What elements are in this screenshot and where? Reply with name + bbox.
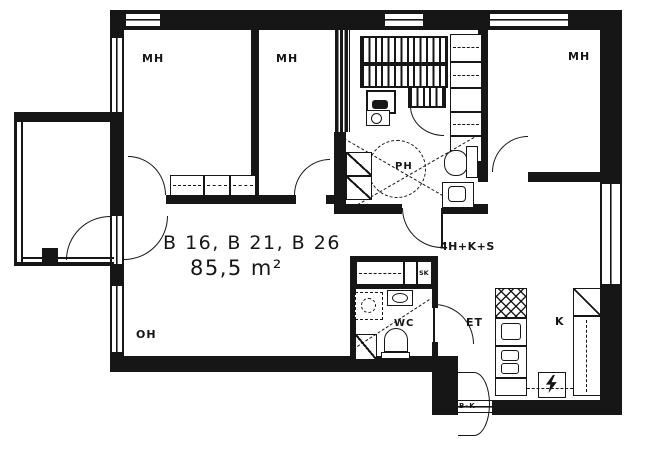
kitchen-upper-cabinet-line (586, 320, 587, 392)
door-arc-bedroom1 (128, 156, 166, 195)
wc-closet (356, 261, 404, 285)
room-label-wc: WC (394, 318, 414, 329)
room-label-washroom: PH (395, 161, 413, 172)
wall-wc-right-upper (432, 256, 438, 308)
closet-ph-lower (346, 176, 372, 200)
wall-washroom-left (334, 132, 346, 214)
stove-icon (538, 372, 566, 398)
toilet-base-wc (381, 352, 410, 359)
cabinet-2 (450, 62, 482, 88)
window-right (601, 184, 621, 284)
kitchen-sink-icon (495, 346, 527, 378)
fridge-diagonal-icon (573, 288, 601, 316)
wall-bedroom3-bottom (528, 172, 602, 182)
unit-numbers-label: B 16, B 21, B 26 (163, 232, 341, 254)
floor-plan: SK MH MH MH PH OH WC ET K B 16, B 21, B … (0, 0, 650, 454)
wc-corner-unit (355, 334, 377, 360)
sauna-bench-step (408, 86, 446, 108)
window-left-2 (111, 286, 123, 352)
sink-basin-2 (501, 363, 519, 374)
washbasin-icon-ph (366, 110, 390, 126)
window-top-3 (490, 13, 568, 27)
room-label-bedroom2: MH (276, 52, 298, 65)
washbasin-bowl-wc (392, 293, 408, 303)
sauna-bench-lower (360, 64, 448, 88)
cabinet-3 (450, 88, 482, 112)
door-arc-balcony-outside (66, 216, 110, 260)
fridge-hatched-icon (495, 288, 527, 318)
sink-bowl-ph (448, 186, 466, 202)
wc-shelf-box (404, 261, 417, 285)
balcony-post (42, 248, 58, 264)
toilet-bowl-icon-wc (384, 328, 408, 352)
wall-bedrooms-bottom (166, 195, 296, 204)
lightning-icon (544, 375, 558, 393)
room-label-living: OH (136, 328, 157, 341)
entry-code-label: B-K (459, 402, 476, 410)
kitchen-counter-dash (527, 388, 573, 389)
balcony-top-edge (14, 112, 112, 122)
window-top-1 (126, 13, 160, 27)
wall-wc-right-lower (432, 342, 438, 360)
kitchen-cabinet-inner (501, 323, 521, 340)
wardrobe-1 (170, 175, 204, 196)
room-label-bedroom3: MH (568, 50, 590, 63)
wall-entry-step (432, 356, 458, 415)
cabinet-4 (450, 112, 482, 136)
balcony-rail-left-inner (21, 122, 23, 262)
room-label-bedroom1: MH (142, 52, 164, 65)
duct-shaft (334, 30, 350, 132)
room-label-kitchen: K (555, 315, 565, 328)
kitchen-counter-end (495, 378, 527, 396)
cabinet-1 (450, 34, 482, 62)
washing-machine-icon (355, 292, 383, 320)
sauna-stove-core (372, 100, 388, 109)
door-arc-balcony-inside (124, 216, 168, 260)
sauna-bench-upper (360, 36, 448, 64)
wardrobe-3 (230, 175, 256, 196)
cleaning-closet: SK (417, 261, 432, 285)
toilet-tank-ph (466, 146, 478, 178)
area-label: 85,5 m² (190, 256, 283, 280)
closet-ph-upper (346, 152, 372, 176)
kitchen-cabinet (495, 318, 527, 346)
room-label-entry-hall: ET (466, 316, 483, 329)
balcony-rail-bottom-outer (14, 262, 114, 266)
window-top-2 (385, 13, 423, 27)
washbasin-icon-wc (387, 290, 413, 306)
door-arc-sauna (410, 106, 444, 136)
window-left-1 (111, 38, 123, 112)
cleaning-closet-label: SK (419, 269, 429, 277)
sink-unit-ph (442, 182, 474, 208)
sink-basin-1 (501, 350, 519, 361)
kitchen-counter-right (573, 316, 601, 396)
door-arc-bedroom3 (492, 136, 528, 172)
wall-bedroom-divider (251, 30, 259, 197)
door-arc-washroom (402, 208, 442, 248)
door-leaf-wc (433, 306, 435, 344)
washbasin-bowl-ph (371, 113, 382, 124)
wall-bottom-right (492, 400, 622, 415)
balcony-rail-left-outer (14, 122, 17, 264)
apartment-type-label: 4H+K+S (440, 240, 495, 253)
door-arc-bedroom2 (294, 159, 330, 195)
toilet-bowl-icon-ph (444, 150, 468, 176)
washing-machine-drum (361, 298, 376, 313)
wardrobe-2 (204, 175, 230, 196)
